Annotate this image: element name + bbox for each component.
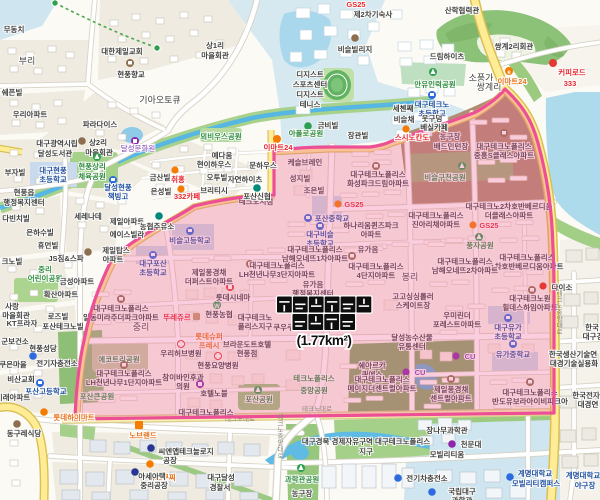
svg-text:체육공원: 체육공원 xyxy=(78,171,106,181)
svg-text:대경기술실용화: 대경기술실용화 xyxy=(550,358,598,368)
svg-text:계명대학교: 계명대학교 xyxy=(518,468,553,478)
svg-text:노브랜드: 노브랜드 xyxy=(129,430,157,440)
svg-text:(1.77km²): (1.77km²) xyxy=(297,333,352,348)
svg-text:현풍읍: 현풍읍 xyxy=(14,187,35,197)
svg-text:책빙고: 책빙고 xyxy=(108,191,129,201)
svg-text:포산테크노빌: 포산테크노빌 xyxy=(42,321,83,331)
svg-text:GS25: GS25 xyxy=(346,0,365,9)
svg-text:베실카페: 베실카페 xyxy=(420,122,448,132)
svg-text:과학관: 과학관 xyxy=(452,495,473,500)
svg-text:모빌리티캠퍼스: 모빌리티캠퍼스 xyxy=(512,478,560,488)
svg-text:웃구덩: 웃구덩 xyxy=(422,113,443,123)
svg-text:롯데하이마트: 롯데하이마트 xyxy=(53,412,94,422)
svg-text:이마트24: 이마트24 xyxy=(263,142,293,152)
svg-text:세첸째: 세첸째 xyxy=(393,103,414,113)
svg-text:한국생산기술연: 한국생산기술연 xyxy=(549,349,597,359)
svg-text:대구현풍: 대구현풍 xyxy=(39,165,67,175)
svg-text:오투빌: 오투빌 xyxy=(207,172,228,182)
svg-text:국립대구: 국립대구 xyxy=(448,486,476,496)
svg-text:테니스: 테니스 xyxy=(300,99,321,109)
svg-text:산학협력관: 산학협력관 xyxy=(445,5,480,15)
svg-text:디지스트: 디지스트 xyxy=(296,89,324,99)
svg-text:테크노중앙대로: 테크노중앙대로 xyxy=(276,413,284,459)
svg-text:아세아택: 아세아택 xyxy=(138,471,166,481)
svg-text:모빌리티움: 모빌리티움 xyxy=(430,449,465,459)
svg-text:씨엔앱테크놀로지: 씨엔앱테크놀로지 xyxy=(158,446,213,456)
svg-text:JS짐&스파: JS짐&스파 xyxy=(48,253,83,263)
svg-text:스시노칸도: 스시노칸도 xyxy=(395,132,430,142)
svg-text:제2차기숙사: 제2차기숙사 xyxy=(354,9,393,19)
svg-text:중리: 중리 xyxy=(38,264,52,274)
svg-text:초등학교: 초등학교 xyxy=(39,174,67,184)
svg-text:대구경: 대구경 xyxy=(583,331,600,341)
svg-text:대구경북 경제자유구역 대구테크노폴리스: 대구경북 경제자유구역 대구테크노폴리스 xyxy=(302,436,430,446)
svg-text:확산아파트: 확산아파트 xyxy=(44,289,79,299)
svg-text:테크노중앙대로: 테크노중앙대로 xyxy=(555,289,563,335)
svg-text:전기차충전소: 전기차충전소 xyxy=(406,473,447,483)
svg-text:현풍향교: 현풍향교 xyxy=(117,69,145,79)
svg-text:아파트: 아파트 xyxy=(103,254,124,264)
svg-text:금산빌: 금산빌 xyxy=(150,172,171,182)
svg-text:포산신협: 포산신협 xyxy=(243,191,271,201)
svg-text:동구레식당: 동구레식당 xyxy=(7,428,42,438)
svg-text:천문대: 천문대 xyxy=(461,439,482,449)
svg-text:부리: 부리 xyxy=(19,56,36,66)
svg-text:상1리: 상1리 xyxy=(206,40,224,50)
svg-text:중리공장: 중리공장 xyxy=(140,480,168,490)
svg-text:이마트24: 이마트24 xyxy=(497,76,527,86)
svg-text:야구장: 야구장 xyxy=(575,480,596,490)
svg-text:쌍계2리회관: 쌍계2리회관 xyxy=(495,41,534,51)
svg-text:전기자충전소: 전기자충전소 xyxy=(36,358,77,368)
svg-text:비산교회: 비산교회 xyxy=(7,374,35,384)
svg-text:파라다이스: 파라다이스 xyxy=(83,119,118,129)
svg-text:취홍: 취홍 xyxy=(171,174,185,184)
svg-text:다이소: 다이소 xyxy=(552,282,573,292)
svg-text:장관빌: 장관빌 xyxy=(348,130,369,140)
svg-text:대한제일교회: 대한제일교회 xyxy=(101,46,142,56)
svg-text:공장: 공장 xyxy=(163,455,177,465)
svg-text:브리티시: 브리티시 xyxy=(200,185,228,195)
svg-text:333: 333 xyxy=(564,79,577,88)
svg-text:대구달성: 대구달성 xyxy=(207,472,235,482)
svg-text:어린이공원: 어린이공원 xyxy=(28,273,63,283)
svg-text:KT프라자: KT프라자 xyxy=(7,318,38,328)
svg-text:사랑: 사랑 xyxy=(5,301,19,311)
svg-text:과학관공원: 과학관공원 xyxy=(285,474,320,484)
svg-text:우리아파트: 우리아파트 xyxy=(13,109,48,119)
svg-text:332카페: 332카페 xyxy=(174,191,200,201)
svg-text:마을회관: 마을회관 xyxy=(201,50,229,60)
svg-text:대구테크노: 대구테크노 xyxy=(415,99,450,109)
svg-text:포산고등학교: 포산고등학교 xyxy=(25,386,66,396)
svg-text:테크노대로: 테크노대로 xyxy=(302,405,332,413)
svg-text:달성문화원: 달성문화원 xyxy=(121,144,156,153)
svg-text:금성아파트: 금성아파트 xyxy=(60,276,95,286)
svg-text:크노빌: 크노빌 xyxy=(2,256,23,266)
svg-text:은하수빌: 은하수빌 xyxy=(26,227,54,237)
svg-text:달성도서관: 달성도서관 xyxy=(38,148,73,158)
svg-text:커피로드: 커피로드 xyxy=(558,67,586,77)
svg-text:디지스트: 디지스트 xyxy=(296,69,324,79)
svg-text:비슬빌리지: 비슬빌리지 xyxy=(338,44,373,54)
svg-text:대구광역시립: 대구광역시립 xyxy=(36,138,77,148)
svg-text:쿠은마을: 쿠은마을 xyxy=(0,359,27,369)
svg-text:장나무과학관: 장나무과학관 xyxy=(426,425,467,435)
svg-text:미래아파트: 미래아파트 xyxy=(0,392,30,402)
svg-text:뫼비우스공원: 뫼비우스공원 xyxy=(200,131,241,141)
svg-text:세레나데: 세레나데 xyxy=(74,211,102,221)
svg-text:예다움: 예다움 xyxy=(212,150,233,160)
svg-text:농구장: 농구장 xyxy=(292,488,313,498)
svg-text:현이하우스: 현이하우스 xyxy=(197,159,232,169)
svg-text:드림하이츠: 드림하이츠 xyxy=(430,51,465,61)
svg-text:비슬채: 비슬채 xyxy=(394,114,415,124)
svg-text:만유인력공원: 만유인력공원 xyxy=(414,79,455,89)
svg-text:현풍상리: 현풍상리 xyxy=(78,161,106,171)
svg-text:지구: 지구 xyxy=(359,446,373,456)
svg-text:문하우스: 문하우스 xyxy=(249,160,277,170)
svg-text:다빈치빌: 다빈치빌 xyxy=(2,213,30,223)
svg-text:휴먼빌: 휴먼빌 xyxy=(38,240,59,250)
svg-text:행정복지센터: 행정복지센터 xyxy=(3,197,44,207)
svg-text:현풍성당: 현풍성당 xyxy=(29,343,57,353)
svg-text:경찰서: 경찰서 xyxy=(210,482,231,492)
svg-text:아폴로공원: 아폴로공원 xyxy=(289,128,324,138)
svg-text:계명대학교: 계명대학교 xyxy=(566,470,600,480)
svg-text:군보건소: 군보건소 xyxy=(1,336,29,346)
svg-text:달성현풍: 달성현풍 xyxy=(104,182,132,192)
svg-text:대경연: 대경연 xyxy=(578,399,599,409)
svg-text:한국: 한국 xyxy=(585,322,599,332)
svg-text:로즈빌: 로즈빌 xyxy=(48,311,69,321)
svg-text:농협주유소: 농협주유소 xyxy=(140,221,175,231)
svg-text:부자빌: 부자빌 xyxy=(5,167,26,177)
svg-text:은성빌: 은성빌 xyxy=(151,186,172,196)
svg-text:한국전자: 한국전자 xyxy=(572,390,600,400)
svg-text:기아오토큐: 기아오토큐 xyxy=(139,95,180,105)
svg-text:쉐픈빌: 쉐픈빌 xyxy=(2,87,23,97)
svg-text:무동치: 무동치 xyxy=(4,24,25,34)
svg-text:상2리: 상2리 xyxy=(89,137,107,147)
svg-text:스포츠센터: 스포츠센터 xyxy=(293,79,328,89)
svg-text:제일탑스: 제일탑스 xyxy=(102,245,130,255)
svg-text:자연하이츠: 자연하이츠 xyxy=(228,174,263,184)
